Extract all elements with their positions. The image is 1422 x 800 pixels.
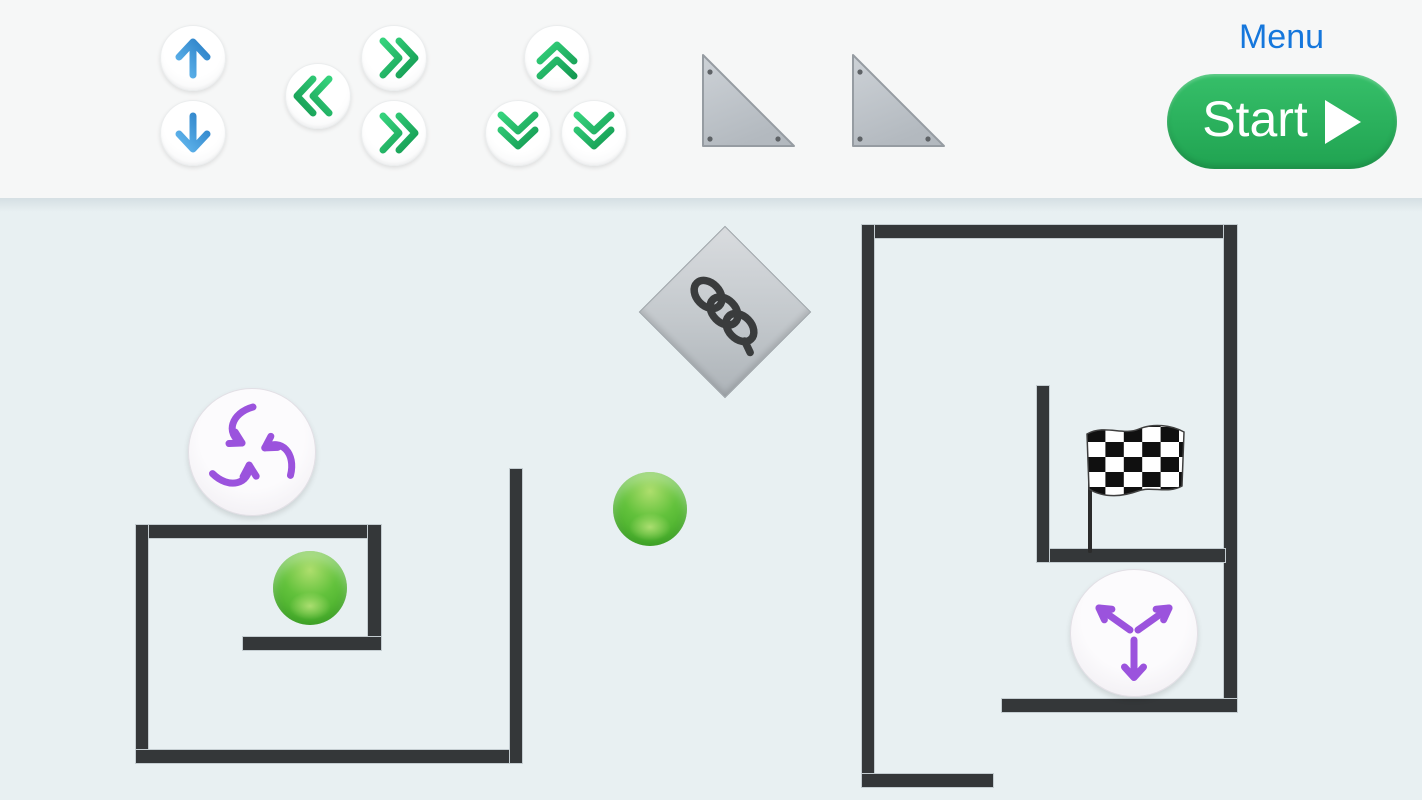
left-box-right-wall [368, 525, 381, 650]
move-down-button[interactable] [160, 100, 226, 166]
move-up-button[interactable] [160, 25, 226, 91]
dash-right-button-bottom[interactable] [361, 100, 427, 166]
left-tall-wall [510, 469, 522, 763]
left-box-bottom-wall [136, 750, 522, 763]
right-left-wall [862, 225, 874, 787]
game-screen: Menu Start [0, 0, 1422, 800]
ramp-triangle-left[interactable] [700, 52, 797, 149]
arrows-inward-icon [189, 389, 315, 515]
double-chevron-down-icon [486, 101, 550, 165]
spring-block[interactable] [639, 226, 812, 399]
left-box-top-wall [136, 525, 381, 538]
double-chevron-left-icon [286, 64, 350, 128]
right-bottom-wall [862, 774, 993, 787]
right-triangle-icon [700, 52, 797, 149]
repel-field[interactable] [1070, 569, 1198, 697]
double-chevron-up-icon [525, 26, 589, 90]
left-shelf-wall [243, 637, 381, 650]
dash-down-button-right[interactable] [561, 100, 627, 166]
dash-right-button-top[interactable] [361, 25, 427, 91]
menu-button[interactable]: Menu [1168, 18, 1395, 57]
start-button[interactable]: Start [1167, 74, 1397, 169]
right-right-wall [1224, 225, 1237, 712]
attract-field[interactable] [188, 388, 316, 516]
ramp-triangle-right[interactable] [850, 52, 947, 149]
double-chevron-down-icon [562, 101, 626, 165]
right-triangle-icon [850, 52, 947, 149]
arrow-up-icon [161, 26, 225, 90]
arrows-outward-icon [1071, 570, 1197, 696]
green-ball-boxed[interactable] [273, 551, 347, 625]
left-box-left-wall [136, 525, 148, 763]
toolbar-header: Menu Start [0, 0, 1422, 198]
dash-left-button[interactable] [285, 63, 351, 129]
finish-flag[interactable] [1083, 424, 1193, 559]
green-ball-free[interactable] [613, 472, 687, 546]
header-shadow [0, 198, 1422, 212]
start-button-label: Start [1202, 94, 1308, 150]
double-chevron-right-icon [362, 101, 426, 165]
right-top-wall [862, 225, 1236, 238]
right-inner-wall [1037, 386, 1049, 562]
checkered-flag-icon [1087, 425, 1184, 495]
dash-up-button[interactable] [524, 25, 590, 91]
right-lower-wall [1002, 699, 1237, 712]
double-chevron-right-icon [362, 26, 426, 90]
dash-down-button-left[interactable] [485, 100, 551, 166]
play-icon [1324, 99, 1362, 145]
arrow-down-icon [161, 101, 225, 165]
